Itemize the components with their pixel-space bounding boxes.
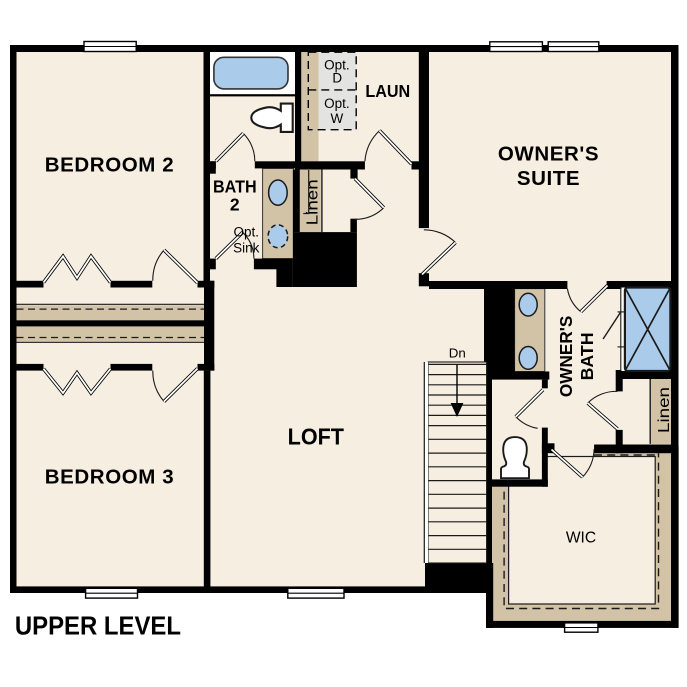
svg-text:BATH: BATH (577, 332, 597, 380)
svg-text:Sink: Sink (233, 240, 260, 255)
svg-text:OWNER'S: OWNER'S (498, 143, 599, 166)
svg-text:W: W (331, 111, 344, 126)
svg-text:D: D (332, 71, 342, 86)
svg-text:LOFT: LOFT (288, 424, 345, 450)
svg-text:Dn: Dn (449, 345, 466, 360)
svg-text:OWNER'S: OWNER'S (556, 316, 576, 397)
svg-text:UPPER LEVEL: UPPER LEVEL (15, 612, 181, 640)
svg-text:Linen: Linen (656, 387, 673, 433)
svg-text:WIC: WIC (566, 530, 596, 547)
svg-text:2: 2 (230, 195, 240, 215)
svg-text:Linen: Linen (305, 179, 322, 225)
svg-text:LAUN: LAUN (365, 81, 410, 101)
svg-text:BEDROOM 3: BEDROOM 3 (45, 465, 175, 488)
svg-text:SUITE: SUITE (517, 167, 580, 190)
svg-text:BATH: BATH (213, 177, 257, 197)
svg-text:BEDROOM 2: BEDROOM 2 (45, 154, 175, 177)
svg-text:Opt.: Opt. (233, 224, 259, 239)
svg-text:Opt.: Opt. (324, 96, 350, 111)
